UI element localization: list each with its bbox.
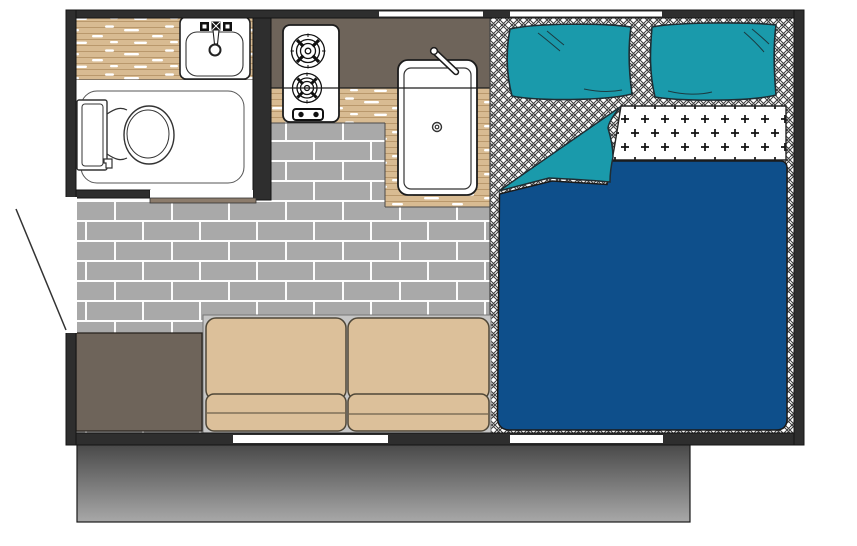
sofa-seat-cushion-right [348,394,489,431]
faucet-knob-right-dot [226,25,230,29]
floorplan-canvas [0,0,857,546]
sofa-back-cushion-left [206,318,346,400]
duvet [498,161,788,430]
bathroom-threshold [150,198,256,203]
window-top-left [379,12,483,17]
platform-base [77,443,690,522]
bathroom-wall-bottom [66,190,150,198]
bathroom [76,17,253,190]
stove-knob-right [313,112,318,117]
storage-bench [76,333,202,431]
bed-area [490,18,794,434]
bathroom-sink [180,17,250,79]
wall-bottom [66,433,804,445]
opening-bottom-left [233,435,388,443]
entry-door-opening [64,197,77,333]
window-top-right [510,12,662,17]
kitchen-faucet-base [431,48,438,55]
kitchen-sink-drain [433,123,442,132]
folded-sheet [612,106,786,160]
bathroom-sink-drain [210,45,221,56]
faucet-knob-left-dot [203,25,207,29]
faucet-spout [213,30,219,44]
opening-bottom-right [510,435,663,443]
bathroom-wall-right [253,18,271,200]
toilet-tank-inner [82,104,103,166]
toilet-bowl-outer [124,106,174,164]
kitchen-sink [398,48,477,195]
sofa [203,315,491,433]
pillow-right [650,23,776,100]
pillow-left [507,24,632,99]
sofa-back-cushion-right [348,318,489,400]
wall-right [794,10,804,445]
stove-knob-left [298,112,303,117]
floorplan [0,0,857,546]
entry-door-swing [16,209,66,330]
bathroom-door-opening [150,190,253,198]
stove [283,25,339,122]
